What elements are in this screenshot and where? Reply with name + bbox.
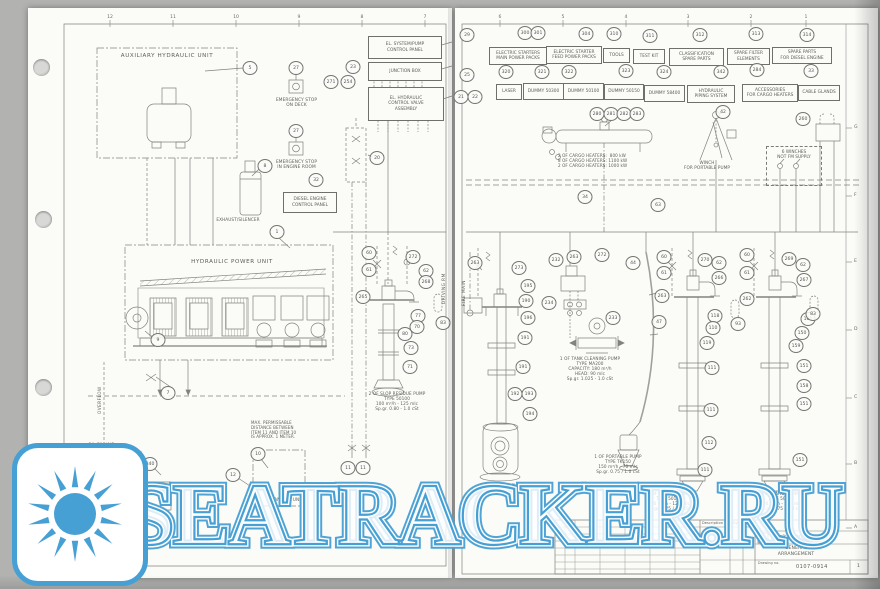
callout-circle: 234 — [542, 296, 557, 310]
spare-part-box: DUMMY 50100 — [563, 83, 604, 100]
sun-icon — [17, 448, 143, 581]
callout-circle: 262 — [740, 292, 755, 306]
callout-circle: 25 — [460, 68, 475, 82]
grid-column-number: 4 — [625, 15, 628, 20]
callout-circle: 283 — [630, 107, 645, 121]
grid-row-letter: F — [854, 193, 857, 198]
callout-circle: 268 — [419, 275, 434, 289]
sun-ray — [37, 528, 56, 544]
callout-circle: 63 — [651, 198, 666, 212]
winches-not-in-supply-box: 6 WINCHES NOT FM SUPPLY — [766, 146, 822, 186]
grid-column-number: 6 — [499, 15, 502, 20]
callout-circle: 312 — [693, 28, 708, 42]
spare-part-box: LASER — [496, 84, 522, 100]
spare-part-box: SPARE FILTER ELEMENTS — [727, 48, 770, 65]
callout-circle: 62 — [796, 258, 811, 272]
sun-ray — [54, 537, 66, 557]
callout-circle: 272 — [595, 248, 610, 262]
callout-circle: 321 — [535, 65, 550, 79]
spare-part-box: SPARE PARTS FOR DIESEL ENGINE — [772, 47, 832, 64]
spare-part-box: CABLE GLANDS — [798, 85, 840, 101]
exhaust-silencer-label: EXHAUST/SILENCER — [205, 217, 271, 222]
spare-part-box: ACCESSORIES FOR CARGO HEATERS — [742, 84, 798, 102]
callout-circle: 267 — [797, 273, 812, 287]
grid-column-number: 10 — [233, 15, 239, 20]
grid-column-number: 8 — [361, 15, 364, 20]
callout-circle: 83 — [806, 307, 821, 321]
grid-column-number: 1 — [805, 15, 808, 20]
callout-circle: 47 — [652, 315, 667, 329]
sun-ray — [72, 541, 78, 562]
callout-circle: 9 — [151, 333, 166, 347]
sun-ray — [94, 528, 113, 544]
callout-circle: 263 — [468, 256, 483, 270]
callout-circle: 194 — [523, 407, 538, 421]
grid-row-letter: D — [854, 327, 858, 332]
callout-circle: 83 — [436, 316, 451, 330]
callout-circle: 311 — [643, 29, 658, 43]
callout-circle: 280 — [590, 107, 605, 121]
sun-ray — [37, 484, 56, 500]
sun-ray — [72, 466, 78, 487]
callout-circle: 27 — [289, 61, 304, 75]
callout-circle: 61 — [740, 266, 755, 280]
grid-column-number: 12 — [107, 15, 113, 20]
sun-ray — [28, 503, 49, 511]
callout-circle: 61 — [657, 266, 672, 280]
callout-circle: 29 — [460, 28, 475, 42]
watermark-text: SEATRACKER.RU — [126, 472, 841, 560]
sun-ray — [28, 517, 49, 525]
grid-column-number: 11 — [170, 15, 176, 20]
callout-circle: 111 — [705, 361, 720, 375]
callout-circle: 150 — [795, 326, 810, 340]
callout-circle: 27 — [289, 124, 304, 138]
emergency-stop-engine-label: EMERGENCY STOP IN ENGINE ROOM — [268, 160, 325, 170]
title-drawing-no: 0107-0914 — [796, 564, 828, 570]
spare-part-box: DUMMY 50150 — [604, 84, 644, 100]
callout-circle: 233 — [606, 311, 621, 325]
binder-hole — [33, 59, 50, 76]
cargo-heaters-note: 2 OF CARGO HEATERS: 800 kW 8 OF CARGO HE… — [558, 154, 650, 169]
sun-ray — [84, 537, 96, 557]
callout-circle: 60 — [740, 248, 755, 262]
emergency-stop-deck-label: EMERGENCY STOP ON DECK — [268, 98, 325, 108]
max-distance-note: MAX. PERMISSABLE DISTANCE BETWEEN ITEM 1… — [251, 421, 315, 440]
callout-circle: 271 — [324, 75, 339, 89]
grid-row-letter: G — [854, 125, 858, 130]
callout-circle: 8 — [258, 159, 273, 173]
grid-column-number: 5 — [562, 15, 565, 20]
callout-circle: 273 — [512, 261, 527, 275]
callout-circle: 195 — [521, 279, 536, 293]
callout-circle: 44 — [626, 256, 641, 270]
callout-circle: 159 — [789, 339, 804, 353]
spare-part-box: TOOLS — [603, 48, 630, 63]
callout-circle: 158 — [797, 379, 812, 393]
callout-circle: 310 — [607, 27, 622, 41]
callout-circle: 21 — [454, 90, 469, 104]
binder-hole — [35, 211, 52, 228]
overflow-label: OVERFLOW — [97, 372, 102, 414]
fire-main-label: FIRE MAIN — [461, 258, 466, 306]
sun-ray — [94, 484, 113, 500]
callout-circle: 196 — [521, 311, 536, 325]
callout-circle: 263 — [567, 250, 582, 264]
callout-circle: 322 — [562, 65, 577, 79]
callout-circle: 71 — [403, 360, 418, 374]
callout-circle: 304 — [579, 27, 594, 41]
callout-circle: 111 — [704, 403, 719, 417]
aux-unit-title: AUXILIARY HYDRAULIC UNIT — [99, 53, 235, 60]
binder-hole — [35, 379, 52, 396]
callout-circle: 313 — [749, 27, 764, 41]
callout-circle: 20 — [370, 151, 385, 165]
callout-circle: 23 — [346, 60, 361, 74]
callout-circle: 320 — [499, 65, 514, 79]
callout-circle: 193 — [522, 387, 537, 401]
callout-circle: 190 — [519, 294, 534, 308]
callout-circle: 1 — [270, 225, 285, 239]
junction-box: JUNCTION BOX — [368, 62, 442, 81]
sun-ray — [84, 471, 96, 491]
callout-circle: 232 — [549, 253, 564, 267]
callout-circle: 22 — [468, 90, 483, 104]
callout-circle: 284 — [750, 63, 765, 77]
callout-circle: 191 — [516, 360, 531, 374]
callout-circle: 254 — [341, 75, 356, 89]
spare-part-box: ELECTRIC STARTERS MAIN POWER PACKS — [489, 47, 547, 65]
grid-row-letter: C — [854, 395, 857, 400]
callout-circle: 260 — [796, 112, 811, 126]
callout-circle: 151 — [793, 453, 808, 467]
grid-column-number: 2 — [750, 15, 753, 20]
callout-circle: 110 — [706, 321, 721, 335]
grid-row-letter: B — [854, 461, 857, 466]
callout-circle: 119 — [700, 336, 715, 350]
callout-circle: 93 — [731, 317, 746, 331]
callout-circle: 10 — [251, 447, 266, 461]
callout-circle: 7 — [161, 386, 176, 400]
spare-part-box: HYDRAULIC PIPING SYSTEM — [687, 85, 735, 103]
callout-circle: 314 — [800, 28, 815, 42]
diesel-engine-control-panel: DIESEL ENGINE CONTROL PANEL — [283, 192, 337, 213]
compartment-label: DRIVING RM — [441, 252, 446, 304]
scanned-drawing-photo: AUXILIARY HYDRAULIC UNIT EMERGENCY STOP … — [0, 0, 880, 589]
el-hydraulic-control-valve-assembly: EL. HYDRAULIC CONTROL VALVE ASSEMBLY — [368, 87, 444, 121]
callout-circle: 61 — [362, 263, 377, 277]
sun-ray — [100, 503, 121, 511]
spare-part-box: ELECTRIC STARTER FEED POWER PACKS — [546, 46, 602, 64]
slop-pump-note: 2 OF SLOP RESIDUE PUMP TYPE 50100 100 m³… — [356, 391, 438, 411]
callout-circle: 323 — [619, 64, 634, 78]
callout-circle: 269 — [782, 252, 797, 266]
sun-ray — [100, 517, 121, 525]
grid-row-letter: A — [854, 525, 857, 530]
callout-circle: 151 — [797, 359, 812, 373]
spare-part-box: CLASSIFICATION SPARE PARTS — [669, 48, 724, 66]
grid-row-letter: E — [854, 259, 857, 264]
callout-circle: 73 — [404, 341, 419, 355]
callout-circle: 62 — [712, 256, 727, 270]
callout-circle: 32 — [309, 173, 324, 187]
hpu-title: HYDRAULIC POWER UNIT — [162, 259, 302, 266]
callout-circle: 60 — [362, 246, 377, 260]
spare-part-box: DUMMY 58400 — [644, 85, 685, 102]
callout-circle: 342 — [714, 65, 729, 79]
callout-circle: 42 — [716, 105, 731, 119]
callout-circle: 270 — [698, 253, 713, 267]
callout-circle: 265 — [356, 290, 371, 304]
spare-part-box: DUMMY 50300 — [523, 83, 564, 100]
callout-circle: 263 — [655, 289, 670, 303]
callout-circle: 33 — [804, 64, 819, 78]
callout-circle: 112 — [702, 436, 717, 450]
tank-cleaning-pump-note: 1 OF TANK CLEANING PUMP TYPE MA200 CAPAC… — [551, 356, 629, 381]
seatracker-logo — [12, 443, 148, 586]
callout-circle: 266 — [712, 271, 727, 285]
title-rev: 1 — [857, 564, 860, 570]
callout-circle: 272 — [406, 250, 421, 264]
el-system-pump-control-panel: EL. SYSTEM/PUMP CONTROL PANEL — [368, 36, 442, 59]
winch-label: WINCH FOR PORTABLE PUMP — [678, 160, 736, 170]
spare-part-box: TEST KIT — [633, 49, 665, 64]
sun-ray — [54, 471, 66, 491]
callout-circle: 60 — [657, 250, 672, 264]
callout-circle: 151 — [797, 397, 812, 411]
callout-circle: 5 — [243, 61, 258, 75]
grid-column-number: 3 — [687, 15, 690, 20]
callout-circle: 80 — [398, 327, 413, 341]
callout-circle: 192 — [508, 387, 523, 401]
callout-circle: 191 — [518, 331, 533, 345]
callout-circle: 324 — [657, 65, 672, 79]
grid-column-number: 9 — [298, 15, 301, 20]
callout-circle: 34 — [578, 190, 593, 204]
grid-column-number: 7 — [424, 15, 427, 20]
callout-circle: 301 — [531, 26, 546, 40]
